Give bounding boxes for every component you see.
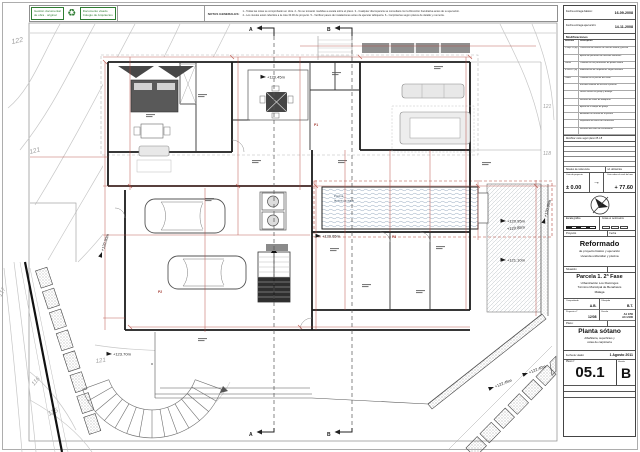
recycle-icon: ♻ — [65, 6, 79, 21]
level-120-95: +120.95m — [507, 218, 526, 223]
staircase — [258, 244, 290, 302]
scale-cell: Escala A1 1/50 A3 1/100 — [600, 310, 636, 321]
credits-grid: Comprobado A.B. Dibujado B.T. Proyecto n… — [564, 299, 635, 321]
sheet-version: B — [618, 363, 634, 383]
levels-header: Niveles de referencia — [564, 167, 605, 172]
project-datum-cell: Cota de proyecto ± 0.00 — [564, 173, 590, 192]
date1-label: Fecha entrega básico: — [566, 11, 593, 14]
car-1 — [145, 199, 225, 233]
section-marker-a-bottom: A — [249, 432, 253, 438]
datum-row: Cota de proyecto ± 0.00 → Cota sobre el … — [564, 173, 635, 193]
mods-title: Modificaciones — [566, 35, 588, 39]
title-block: Fecha entrega básico: 16-09-2008 Fecha e… — [563, 5, 636, 437]
notes-line2: 4.- Los niveles están referidos a la cot… — [242, 14, 444, 17]
level-120-65: +120.65m — [322, 233, 341, 238]
section-marker-b-bottom: B — [327, 432, 331, 438]
units-cell: Cotas en centímetros — [599, 217, 635, 230]
contour-label-121-a: 121 — [29, 146, 42, 156]
door-tag-p2: P2 — [158, 290, 162, 294]
datum-value: ± 0.00 — [566, 185, 587, 191]
north-arrow-icon — [589, 194, 611, 216]
sea-level-cell: Cota sobre el nivel del mar + 77.60 — [603, 173, 635, 192]
plan-title: Planta sótano — [564, 328, 635, 335]
levels-header-right: ref. altimétrica — [605, 167, 635, 172]
sheet-number-row: Plano nº 05.1 Versión B — [564, 360, 635, 386]
location-section: Parcela 1. 2ª Fase Urbanización Los Flam… — [564, 273, 635, 299]
mods-table-header: Revisión Descripción — [564, 40, 635, 47]
top-notes-strip: Gestión documental de obra · original ♻ … — [29, 5, 558, 22]
date1-value: 16-09-2008 — [615, 11, 633, 15]
sheet-number-cell: Plano nº 05.1 — [564, 360, 616, 385]
empty-box — [564, 398, 635, 436]
level-121-10: +121.10m — [507, 257, 526, 262]
mods-row: Acabados en terraza de la piscina — [564, 113, 635, 120]
left-retaining-wall — [20, 262, 101, 452]
mods-row: Ajuste del perímetro de terrazas exterio… — [564, 55, 635, 62]
right-retaining-wall — [428, 314, 556, 452]
green-stamp-left: Gestión documental de obra · original — [31, 7, 64, 20]
mods-col-description: Descripción — [579, 40, 635, 46]
date2-value: 14-11-2008 — [615, 25, 633, 29]
visa-date: 1 Agosto 2011 — [610, 353, 633, 357]
notes-body: 1.- Todas las cotas se comprobarán en ob… — [242, 10, 459, 17]
section-marker-a-top: A — [249, 27, 253, 33]
sheet-version-cell: Versión B — [616, 360, 635, 385]
pool-label: Piscina — [334, 194, 344, 198]
contour-label-121-b: 121 — [95, 358, 106, 365]
project-number-cell: Proyecto nº 12/08 — [564, 310, 600, 321]
level-123-70: +123.70m — [113, 351, 132, 356]
stamp-right-line2: Colegio de Arquitectos — [83, 14, 113, 18]
section-marker-b-top: B — [327, 27, 331, 33]
general-notes: NOTAS GENERALES: 1.- Todas las cotas se … — [205, 6, 557, 21]
plan-name-section: Planta sótano Albañilería, superficies y… — [564, 327, 635, 351]
north-arrow-cell — [564, 193, 635, 217]
delivery-date-execution: Fecha entrega ejecución: 14-11-2008 — [564, 20, 635, 34]
level-122-45: +122.45m — [494, 377, 513, 389]
sea-level-value: + 77.60 — [606, 185, 633, 191]
mods-row: 1-Sep-11 (A)Corrección de niveles en cot… — [564, 47, 635, 54]
door-tag-p3: P3 — [392, 235, 396, 239]
mods-row: Revisión del muro de cerramiento — [564, 128, 635, 135]
project-title: Reformado — [564, 239, 635, 248]
visa-date-row: Fecha de visado: 1 Agosto 2011 — [564, 351, 635, 360]
project-section: Reformado de proyecto básico y ejecución… — [564, 237, 635, 267]
pool-sublabel: lámina de agua — [334, 199, 354, 203]
door-tag-p1: P1 — [314, 123, 318, 127]
floor-plan-canvas: 122 121 117 116 115 121 121 118 — [0, 0, 640, 452]
level-120-45: +120.45m — [267, 74, 286, 79]
location-parcel: Parcela 1. 2ª Fase — [564, 274, 635, 280]
stamp-left-line2: de obra · original — [34, 14, 61, 18]
datum-arrow-icon: → — [590, 173, 603, 192]
scale-units-row: Escala gráfica Cotas en centímetros — [564, 217, 635, 231]
mods-row: VariosCambios en las particiones de plan… — [564, 62, 635, 69]
car-2 — [168, 256, 246, 289]
graphic-scale-bar — [566, 226, 596, 229]
notes-title: NOTAS GENERALES: — [208, 12, 240, 16]
mods-row: Nueva solera en garaje y bodega — [564, 91, 635, 98]
mods-row: 4-Jun-12 (B)Modificación de carpinterías… — [564, 69, 635, 76]
units-boxes — [602, 226, 633, 230]
green-stamp-right: Documento visado Colegio de Arquitectos — [80, 7, 116, 20]
mods-row: Revisión de cotas de tabiquería — [564, 99, 635, 106]
mods-row: Ajuste de la rampa de garaje — [564, 106, 635, 113]
contour-label-122: 122 — [11, 37, 24, 46]
scale-values: A1 1/50 A3 1/100 — [602, 313, 634, 319]
contour-label-118: 118 — [543, 151, 551, 157]
checked-cell: Comprobado A.B. — [564, 299, 600, 310]
empty-strip-cell — [117, 6, 205, 21]
graphic-scale-cell: Escala gráfica — [564, 217, 599, 230]
mods-row: Replanteo de muros de contención — [564, 120, 635, 127]
modifications-table: Revisión Descripción 1-Sep-11 (A)Correcc… — [564, 40, 635, 136]
living-room-furniture — [392, 84, 474, 152]
drawing-sheet: 122 121 117 116 115 121 121 118 — [0, 0, 640, 452]
delivery-date-basic: Fecha entrega básico: 16-09-2008 — [564, 6, 635, 20]
drawn-cell: Dibujado B.T. — [600, 299, 636, 310]
date2-label: Fecha entrega ejecución: — [566, 25, 596, 28]
mods-row: TodosCambios en el porche del salón — [564, 77, 635, 84]
pool-terrace — [487, 184, 548, 316]
mods-col-revision: Revisión — [564, 40, 579, 46]
mods-row: Escalera exterior de acceso a parcela — [564, 84, 635, 91]
contour-label-116: 116 — [31, 376, 42, 388]
sheet-number: 05.1 — [566, 363, 614, 383]
contour-label-121-c: 121 — [543, 104, 552, 110]
